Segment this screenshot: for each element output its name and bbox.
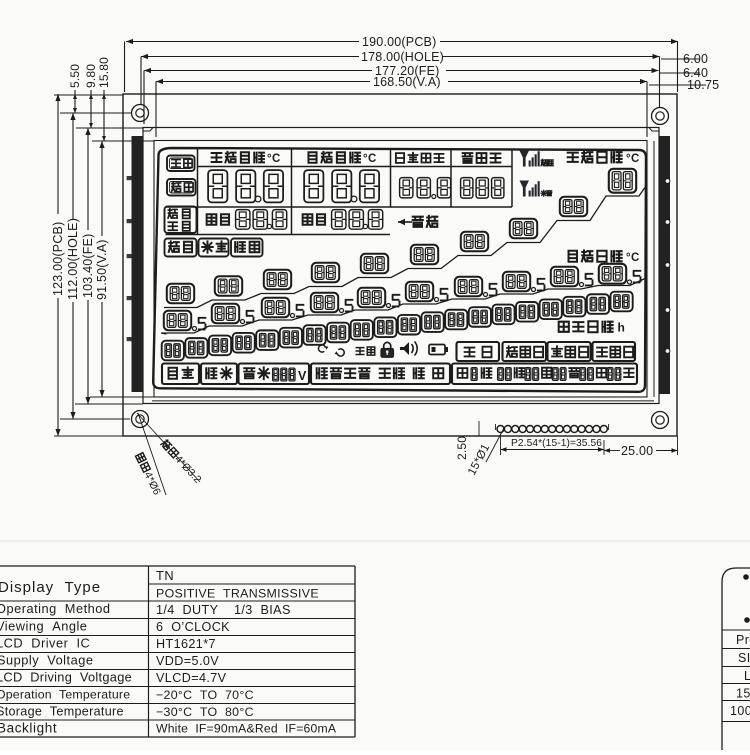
svg-text:123.00(PCB): 123.00(PCB) xyxy=(51,222,65,296)
svg-text:V: V xyxy=(298,369,307,383)
svg-text:1/4 DUTY 1/3 BIAS: 1/4 DUTY 1/3 BIAS xyxy=(156,603,291,617)
svg-text:Operating Method: Operating Method xyxy=(0,601,111,616)
svg-text:190.00(PCB): 190.00(PCB) xyxy=(362,35,436,49)
svg-text:112.00(HOLE): 112.00(HOLE) xyxy=(66,218,80,300)
svg-text:Viewing Angle: Viewing Angle xyxy=(0,619,87,634)
svg-text:100: 100 xyxy=(730,704,750,718)
svg-text:103.40(FE): 103.40(FE) xyxy=(81,233,95,298)
svg-text:91.50(V.A): 91.50(V.A) xyxy=(95,239,109,300)
svg-text:VDD=5.0V: VDD=5.0V xyxy=(156,654,219,668)
svg-text:6.00: 6.00 xyxy=(683,52,708,66)
svg-text:168.50(V.A): 168.50(V.A) xyxy=(373,75,441,89)
svg-text:9.80: 9.80 xyxy=(84,64,98,88)
svg-text:5.50: 5.50 xyxy=(68,64,82,88)
svg-text:°C: °C xyxy=(626,153,640,165)
svg-text:Supply Voltage: Supply Voltage xyxy=(0,653,93,668)
svg-text:White IF=90mA&Red IF=60mA: White IF=90mA&Red IF=60mA xyxy=(156,722,337,736)
svg-text:6 O’CLOCK: 6 O’CLOCK xyxy=(156,620,230,634)
svg-text:P2.54*(15-1)=35.56: P2.54*(15-1)=35.56 xyxy=(511,438,602,449)
svg-text:−30°C TO 80°C: −30°C TO 80°C xyxy=(156,705,254,719)
svg-text:L: L xyxy=(744,669,750,683)
svg-text:°C: °C xyxy=(363,153,377,165)
svg-text:10.75: 10.75 xyxy=(687,78,719,92)
svg-text:178.00(HOLE): 178.00(HOLE) xyxy=(361,50,444,64)
svg-text:POSITIVE TRANSMISSIVE: POSITIVE TRANSMISSIVE xyxy=(156,587,319,601)
svg-text:°C: °C xyxy=(267,153,281,165)
svg-text:Display Type: Display Type xyxy=(0,579,101,596)
svg-text:h: h xyxy=(618,321,626,335)
svg-text:SIZ: SIZ xyxy=(738,651,750,665)
svg-text:VLCD=4.7V: VLCD=4.7V xyxy=(156,671,227,685)
svg-text:°C: °C xyxy=(626,252,640,264)
svg-text:HT1621*7: HT1621*7 xyxy=(156,637,216,651)
svg-text:15: 15 xyxy=(736,687,750,701)
svg-text:LCD Driving Voltgage: LCD Driving Voltgage xyxy=(0,670,132,685)
svg-text:−20°C TO 70°C: −20°C TO 70°C xyxy=(156,688,254,702)
svg-text:15.80: 15.80 xyxy=(97,57,111,88)
svg-text:Backlight: Backlight xyxy=(0,721,57,736)
svg-text:Operation Temperature: Operation Temperature xyxy=(0,688,130,702)
svg-text:Pro: Pro xyxy=(736,633,750,647)
svg-text:25.00: 25.00 xyxy=(621,444,653,458)
svg-text:2.50: 2.50 xyxy=(455,436,469,460)
svg-text:LCD Driver IC: LCD Driver IC xyxy=(0,636,90,651)
svg-text:Storage Temperature: Storage Temperature xyxy=(0,705,124,719)
svg-text:TN: TN xyxy=(156,568,174,583)
